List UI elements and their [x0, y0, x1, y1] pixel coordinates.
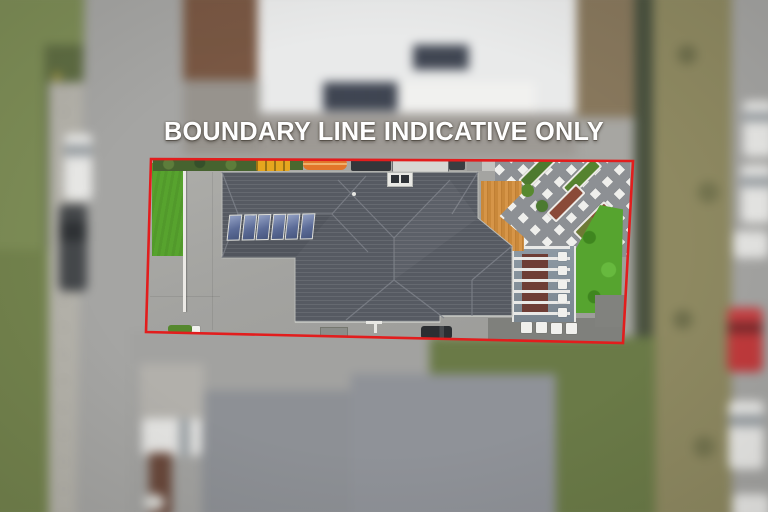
bottom-white-pad — [192, 326, 200, 333]
roof-vent — [352, 192, 356, 196]
parked-car-dark-property — [421, 326, 452, 339]
solar-panel — [227, 215, 243, 241]
parked-car-white-4 — [729, 401, 764, 469]
solar-panel — [285, 214, 301, 240]
skylight-pane — [401, 175, 409, 183]
neighbour-roof-bottom-left-wing — [202, 391, 357, 512]
boundary-caption: BOUNDARY LINE INDICATIVE ONLY — [12, 118, 757, 144]
parked-car-red — [728, 308, 763, 372]
solar-panel — [299, 213, 315, 239]
driveway-bottom — [140, 364, 204, 424]
solar-panel — [270, 214, 286, 240]
neighbour-solar-array-1 — [323, 82, 398, 111]
solar-panel-array — [227, 213, 315, 240]
neighbour-roof-bottom-main — [351, 374, 556, 512]
downpipe-leg — [374, 324, 377, 333]
parked-car-white-3 — [734, 231, 768, 258]
neighbour-garage-roof — [398, 82, 535, 115]
parked-car-dark-left — [59, 204, 87, 291]
parked-car-white-bottom — [142, 418, 202, 455]
verge-grass-right — [653, 0, 738, 512]
skylight — [387, 172, 413, 187]
neighbour-solar-array-2 — [413, 45, 469, 70]
white-garden-dot — [144, 494, 165, 511]
skylight-pane — [391, 175, 399, 183]
parked-car-white-5 — [733, 494, 768, 512]
aerial-photo: BOUNDARY LINE INDICATIVE ONLY — [0, 0, 768, 512]
parked-car-white-2 — [741, 165, 768, 223]
solar-panel — [256, 214, 272, 240]
brick-fence-top — [183, 0, 260, 80]
green-tufts — [168, 325, 192, 333]
solar-panel — [241, 214, 257, 240]
